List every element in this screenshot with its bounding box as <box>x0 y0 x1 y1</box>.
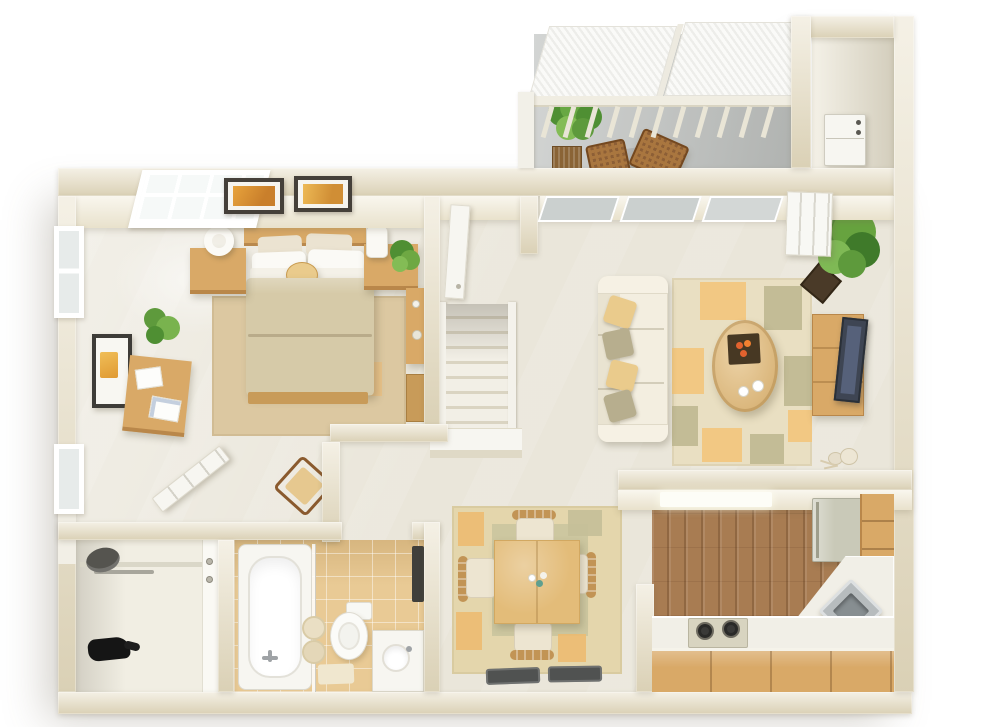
sliding-glass-panel <box>702 196 784 222</box>
picture-art <box>303 184 343 204</box>
centerpiece-leaf <box>536 580 543 587</box>
picture-frame <box>224 178 284 214</box>
tv-screen <box>840 325 861 394</box>
ring-table-lamp <box>204 226 234 256</box>
wall-wing-divider <box>791 16 811 168</box>
wall-bath-right <box>424 522 440 692</box>
appliance-knob <box>856 130 861 135</box>
door-knob <box>456 284 461 289</box>
wicker-planter <box>552 146 582 170</box>
tray-flower <box>744 340 751 347</box>
vanity-item <box>412 300 420 308</box>
bath-mat <box>318 663 355 684</box>
stove-burner <box>722 620 740 638</box>
appliance-seam <box>826 138 864 139</box>
sliding-door-panel <box>785 191 833 257</box>
sofa-pillow-sage <box>601 327 634 360</box>
art-content <box>100 352 118 378</box>
door-knob <box>206 576 213 583</box>
sofa-armrest <box>598 424 668 442</box>
tray-flower <box>736 342 743 349</box>
white-cup <box>738 386 749 397</box>
rug-block-sage <box>568 510 602 536</box>
rug-block-orange <box>672 348 704 394</box>
table-tray <box>727 333 761 365</box>
centerpiece-flower <box>540 572 547 579</box>
kitchen-ceiling-light <box>660 492 772 507</box>
entry-mat <box>548 666 602 683</box>
appliance-knob <box>856 120 861 125</box>
toilet-seat <box>338 622 360 650</box>
toy-head <box>840 448 858 465</box>
wall-balcony-stub <box>518 92 534 168</box>
wall-hall-living-stub <box>520 196 538 254</box>
cabinet-front <box>652 648 894 692</box>
rug-block-orange <box>456 612 482 650</box>
bed-comforter <box>246 278 374 396</box>
rug-block-sage <box>672 406 698 446</box>
rolled-towel <box>302 616 326 640</box>
entry-mat <box>486 667 541 685</box>
stair-depth-shade <box>446 304 508 428</box>
rug-block-sage <box>764 286 802 330</box>
fridge-handle <box>816 502 819 558</box>
armchair-cushion <box>284 466 324 506</box>
sliding-glass-panel <box>620 196 702 222</box>
rug-block-orange <box>702 428 742 462</box>
nightstand-plant <box>392 256 408 272</box>
floor-plan-scene <box>0 0 1000 727</box>
tray-flower <box>740 350 747 357</box>
rug-block-orange <box>788 410 812 442</box>
wall-bottom-outer <box>58 692 912 714</box>
wall-bedroom-right <box>424 196 440 426</box>
centerpiece-flower <box>528 574 536 582</box>
desk-paper <box>135 366 164 389</box>
privacy-screen <box>528 26 677 100</box>
wall-hall-horizontal <box>330 424 448 442</box>
vanity-item <box>412 330 422 340</box>
sofa-armrest <box>598 276 668 294</box>
rug-block-sage <box>784 356 812 406</box>
plant-foliage <box>838 250 866 278</box>
stair-rail-right <box>508 302 516 442</box>
bed-footboard <box>248 392 368 404</box>
chair-back <box>510 650 554 660</box>
rug-block-orange <box>700 282 746 320</box>
bathroom-shelf <box>412 546 424 602</box>
comforter-fold <box>248 334 372 337</box>
black-bag <box>87 636 131 662</box>
tub-faucet <box>268 650 272 662</box>
wall-right-outer <box>894 16 914 692</box>
door-knob <box>206 558 213 565</box>
chair-seat <box>514 622 552 652</box>
stair-landing-face <box>430 450 522 458</box>
rug-block-sage <box>750 434 784 464</box>
picture-art <box>233 186 275 206</box>
chair-seat <box>466 558 496 598</box>
wall-closet-bath-top <box>58 522 342 540</box>
wall-kitchen-top <box>618 470 912 490</box>
rug-block-orange <box>558 634 586 662</box>
vanity-faucet <box>406 646 412 652</box>
stove-burner <box>696 622 714 640</box>
cylinder-table-lamp <box>366 226 388 258</box>
wall-window <box>54 444 84 514</box>
rug-block-orange <box>458 512 484 546</box>
wall-closet-divider <box>218 540 234 692</box>
white-cup <box>752 380 764 392</box>
picture-frame <box>294 176 352 212</box>
rolled-towel <box>302 640 326 664</box>
bedroom-plant <box>146 326 164 344</box>
wall-window <box>54 226 84 318</box>
sliding-glass-panel <box>538 196 620 222</box>
